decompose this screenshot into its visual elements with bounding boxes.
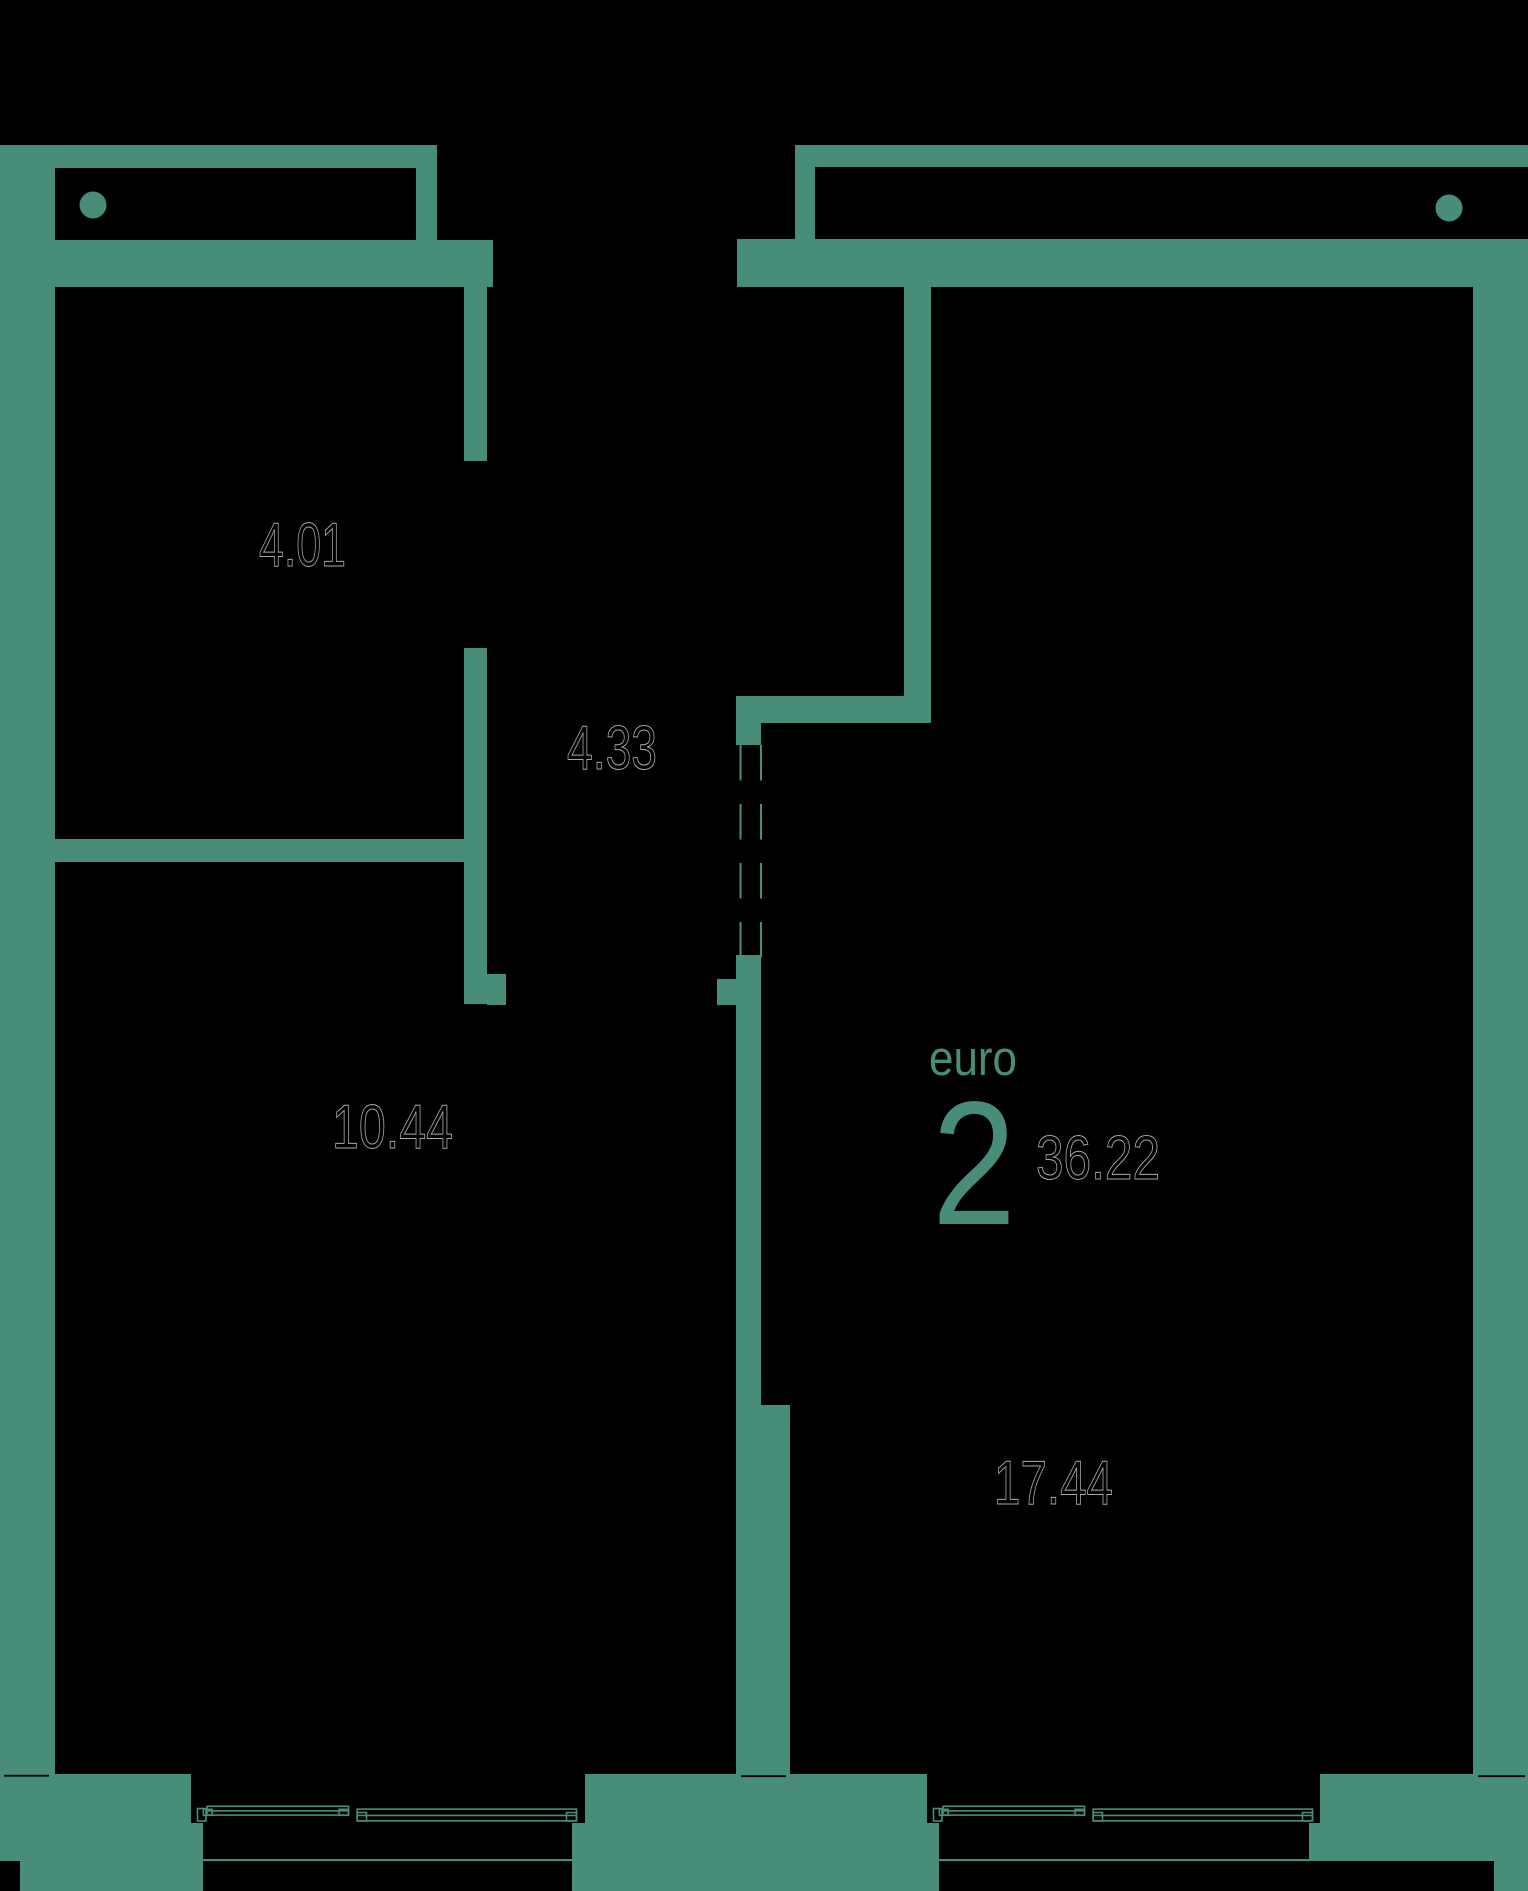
svg-text:10.44: 10.44: [332, 1093, 453, 1162]
svg-text:2: 2: [932, 1066, 1016, 1262]
svg-text:4.01: 4.01: [259, 511, 346, 580]
svg-text:17.44: 17.44: [994, 1449, 1113, 1518]
svg-text:36.22: 36.22: [1036, 1124, 1160, 1193]
svg-text:4.33: 4.33: [567, 714, 657, 783]
